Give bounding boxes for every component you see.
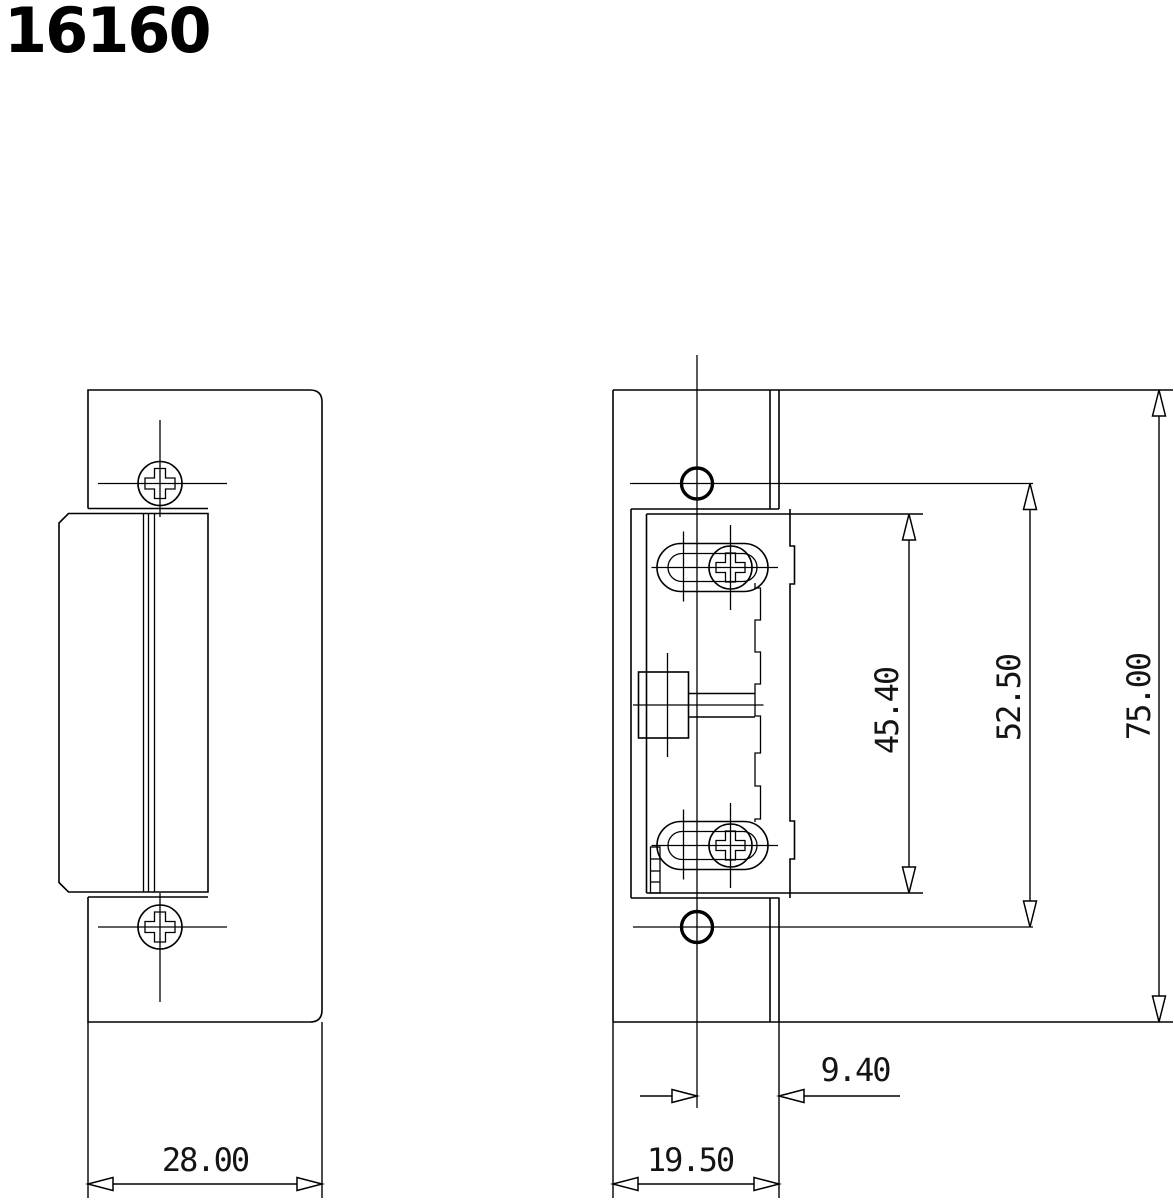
strike-drawing: 16160 — [0, 0, 1174, 1200]
drawing-sheet: 16160 — [0, 0, 1174, 1200]
dim-label-hole-spacing: 52.50 — [990, 654, 1028, 741]
dim-label-lip-depth: 9.40 — [820, 1051, 890, 1089]
dim-label-body-depth: 19.50 — [647, 1141, 734, 1179]
canvas-background — [0, 0, 1174, 1200]
dim-label-body-height: 45.40 — [868, 667, 906, 754]
dim-label-faceplate-height: 75.00 — [1120, 653, 1158, 740]
dim-label-faceplate-width: 28.00 — [162, 1141, 249, 1179]
part-number-title: 16160 — [4, 0, 210, 67]
